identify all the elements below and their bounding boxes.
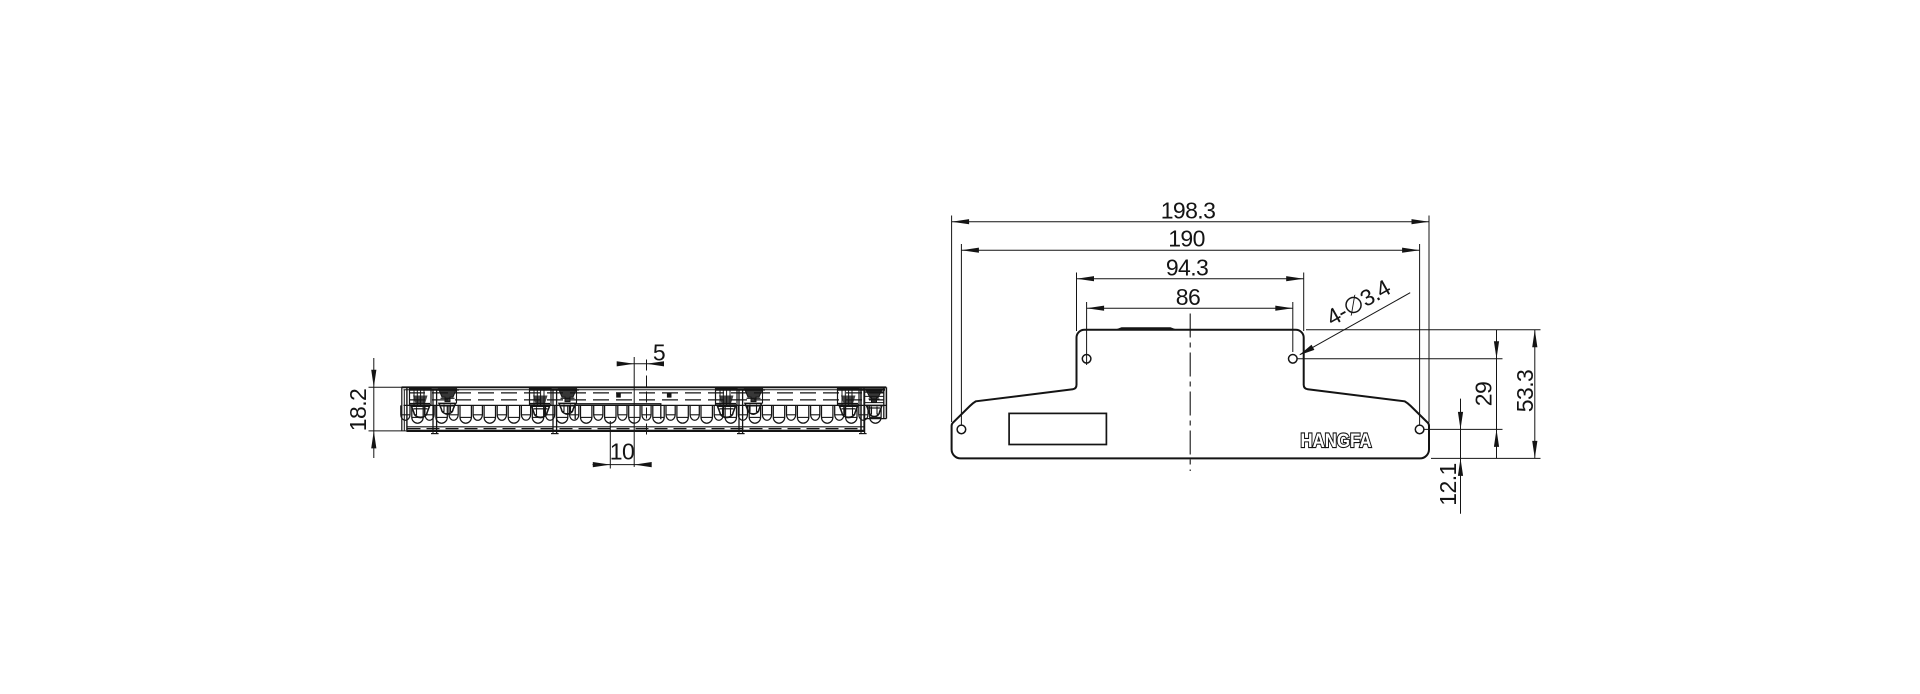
svg-text:86: 86	[1176, 284, 1200, 310]
svg-text:18.2: 18.2	[345, 389, 371, 431]
svg-text:198.3: 198.3	[1161, 198, 1216, 224]
svg-text:29: 29	[1471, 382, 1497, 406]
svg-text:94.3: 94.3	[1166, 254, 1208, 280]
svg-text:5: 5	[653, 340, 665, 366]
svg-text:190: 190	[1168, 226, 1205, 252]
svg-text:53.3: 53.3	[1512, 370, 1538, 412]
svg-text:12.1: 12.1	[1435, 463, 1461, 505]
svg-text:10: 10	[610, 439, 634, 465]
svg-text:HANGFA: HANGFA	[1301, 431, 1372, 452]
